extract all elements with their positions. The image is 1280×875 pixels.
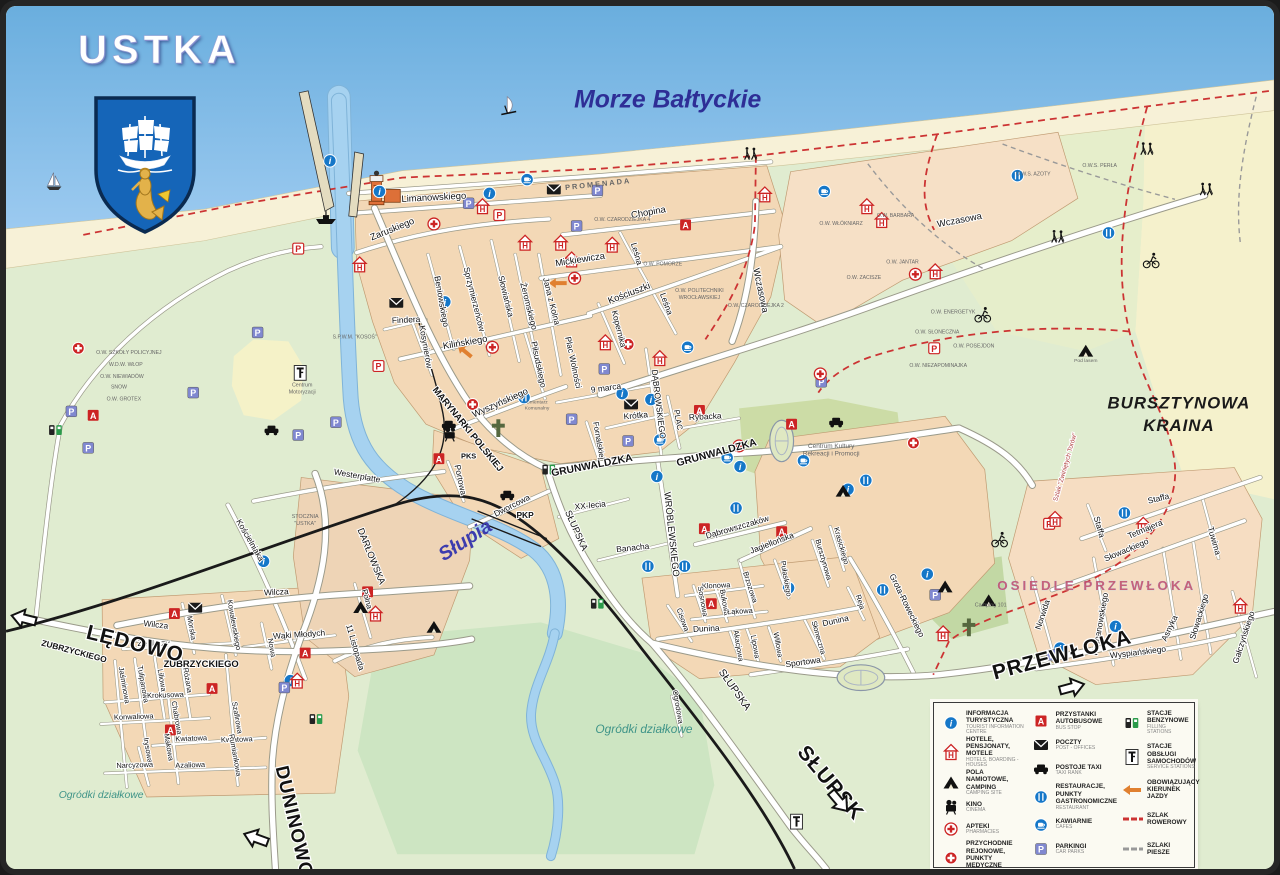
svg-text:H: H	[609, 244, 615, 253]
street-label: Findera	[392, 314, 421, 325]
street-label: O.W. SZKOŁY POLICYJNEJ	[96, 350, 162, 356]
cafe-icon	[681, 341, 693, 353]
taxi-icon	[1034, 764, 1048, 774]
legend-item-bike: SZLAK ROWEROWY	[1121, 808, 1188, 830]
svg-text:H: H	[602, 341, 608, 350]
legend-sublabel: SERVICE STATIONS	[1147, 765, 1196, 771]
legend-item-medical: PRZYCHODNIE REJONOWE, PUNKTY MEDYCZNEAMB…	[940, 840, 1026, 869]
restaurant-icon	[876, 584, 888, 596]
street-label: STOCZNIA	[292, 514, 319, 520]
area-label: Ogródki działkowe	[59, 790, 144, 801]
legend-label: INFORMACJA TURYSTYCZNA	[966, 710, 1026, 725]
area-label: Ogródki działkowe	[595, 722, 693, 736]
parkingr-icon: P	[929, 343, 940, 354]
legend-sublabel: RESTAURANT	[1056, 806, 1117, 812]
street-label: Centrum Kultury	[808, 443, 855, 450]
service-icon	[791, 814, 803, 829]
legend-label: STACJE BENZYNOWE	[1147, 710, 1189, 725]
street-label: S.P.W.M. "KOSOŚ"	[333, 332, 377, 340]
legend-sublabel: CAFES	[1056, 825, 1093, 831]
bus-icon: A	[433, 453, 444, 464]
parking-icon: P	[1030, 838, 1052, 860]
legend-sublabel: BUS STOP	[1056, 726, 1117, 732]
street-label: Kwiatowa	[175, 733, 208, 743]
street-label: Motoryzacji	[289, 390, 316, 396]
bus-icon: A	[1030, 710, 1052, 732]
svg-text:A: A	[788, 420, 795, 430]
bike-icon	[1121, 808, 1143, 830]
svg-text:P: P	[496, 211, 502, 221]
medical-icon	[907, 437, 919, 449]
legend-item-pharmacy: APTEKIPHARMACIES	[940, 818, 1026, 840]
legend-label: SZLAKI PIESZE	[1147, 842, 1188, 857]
legend-sublabel: CAR PARKS	[1056, 850, 1087, 856]
svg-text:A: A	[436, 454, 443, 464]
street-label: Centrum	[292, 383, 313, 389]
svg-text:H: H	[948, 751, 954, 760]
restaurant-icon	[1034, 791, 1047, 804]
street-label: Krokusowa	[147, 690, 185, 700]
street-label: Rekreacji i Promocji	[803, 451, 860, 458]
svg-text:H: H	[762, 193, 768, 202]
restaurant-icon	[730, 502, 742, 514]
parking-icon: P	[293, 430, 304, 441]
parking-icon: P	[566, 414, 577, 425]
svg-text:P: P	[574, 222, 580, 232]
cafe-icon	[1034, 818, 1047, 831]
coat-of-arms	[92, 94, 198, 236]
parking-icon: P	[571, 221, 582, 232]
street-label: Konwaliowa	[114, 711, 155, 721]
bus-icon: A	[1035, 716, 1046, 727]
street-label: WROCŁAWSKIEJ	[679, 295, 721, 301]
svg-text:P: P	[281, 683, 287, 693]
info-icon: i	[483, 187, 495, 199]
restaurant-icon	[1118, 507, 1130, 519]
pharmacy-icon	[569, 272, 581, 284]
parking-icon: P	[623, 436, 634, 447]
legend-sublabel: HOTELS, BOARDING - HOUSES	[966, 758, 1026, 769]
street-label: O.W. NIEZAPOMINAJKA	[909, 363, 967, 369]
street-label: O.W. ENERGETYK	[931, 310, 976, 316]
legend-sublabel: CINEMA	[966, 808, 985, 814]
stadium-h-icon	[837, 665, 885, 691]
legend-item-hotel: HHOTELE, PENSJONATY, MOTELEHOTELS, BOARD…	[940, 736, 1026, 769]
info-icon: i	[921, 568, 933, 580]
pharmacy-icon	[814, 368, 826, 380]
legend-item-fuel: STACJE BENZYNOWEFILLING STATIONS	[1121, 710, 1188, 736]
legend-item-restaurant: RESTAURACJE, PUNKTY GASTRONOMICZNERESTAU…	[1030, 783, 1117, 811]
svg-text:H: H	[864, 205, 870, 214]
street-label: O.W. WŁÓKNIARZ	[819, 220, 862, 227]
camping-icon	[940, 772, 962, 794]
area-label: BURSZTYNOWA	[1108, 393, 1251, 412]
legend-label: OBOWIĄZUJĄCY KIERUNEK JAZDY	[1147, 779, 1199, 801]
post-icon	[1030, 734, 1052, 756]
kino-icon	[940, 796, 962, 818]
parking-icon: P	[252, 327, 263, 338]
street-label: W.D.W. WŁOP	[109, 362, 143, 368]
legend-label: SZLAK ROWEROWY	[1147, 812, 1188, 827]
legend-item-kino: KINOCINEMA	[940, 796, 1026, 818]
svg-text:P: P	[255, 328, 261, 338]
parking-icon: P	[1035, 844, 1046, 855]
street-label: Łąkowa	[727, 606, 754, 616]
fuel-icon	[1121, 712, 1143, 734]
foot-icon	[1121, 838, 1143, 860]
map-paper: iiiiiiiiiiiiiiPPPPPPPPPPPPPPPPPPPPPHHHHH…	[6, 6, 1274, 869]
svg-text:P: P	[625, 437, 631, 447]
svg-text:P: P	[295, 244, 301, 254]
street-label: Azaliowa	[175, 760, 206, 770]
street-label: Cmentarz	[526, 399, 548, 405]
cafe-icon	[1030, 814, 1052, 836]
street-label: O.W. BARBARA	[877, 213, 915, 219]
post-icon	[389, 298, 403, 308]
legend-label: POLA NAMIOTOWE, CAMPING	[966, 769, 1026, 791]
bus-icon: A	[786, 419, 797, 430]
parking-icon: P	[330, 417, 341, 428]
street-label: O.W. GROTEX	[107, 397, 142, 403]
post-icon	[624, 400, 638, 410]
street-label: Camping 101	[975, 603, 1007, 609]
legend-item-post: POCZTYPOST - OFFICES	[1030, 734, 1117, 756]
service-icon	[1126, 750, 1138, 765]
fuel-icon	[1126, 718, 1139, 728]
street-label: O.W. POMORZE	[643, 261, 682, 267]
legend-sublabel: FILLING STATIONS	[1147, 725, 1189, 736]
street-label: Krótka	[623, 409, 648, 421]
svg-text:P: P	[932, 590, 938, 600]
legend-sublabel: PHARMACIES	[966, 830, 999, 836]
svg-text:H: H	[1052, 518, 1058, 527]
bus-icon: A	[169, 608, 180, 619]
street-label: O.W. POLITECHNIKI	[675, 288, 724, 294]
svg-text:A: A	[171, 609, 178, 619]
street-label: SNOW	[111, 385, 127, 391]
service-icon	[294, 366, 306, 381]
post-icon	[1034, 740, 1048, 750]
info-icon: i	[373, 185, 385, 197]
svg-text:A: A	[90, 411, 97, 421]
info-icon: i	[651, 470, 663, 482]
legend-label: RESTAURACJE, PUNKTY GASTRONOMICZNE	[1056, 783, 1117, 805]
svg-text:A: A	[209, 684, 216, 694]
cafe-icon	[818, 185, 830, 197]
street-label: O.W. CZARODZIEJKA 2	[728, 303, 784, 309]
parkingr-icon: P	[293, 243, 304, 254]
legend-item-taxi: POSTOJE TAXITAXI RANK	[1030, 759, 1117, 781]
svg-text:H: H	[932, 270, 938, 279]
cafe-icon	[521, 173, 533, 185]
street-label: PKS	[461, 452, 476, 461]
svg-text:P: P	[295, 431, 301, 441]
area-label: Morze Bałtyckie	[574, 87, 761, 114]
pharmacy-icon	[428, 218, 440, 230]
street-label: O.W.S. AZOTY	[1016, 172, 1051, 178]
legend-item-bus: APRZYSTANKI AUTOBUSOWEBUS STOP	[1030, 710, 1117, 732]
svg-text:P: P	[333, 418, 339, 428]
legend-label: PRZYCHODNIE REJONOWE, PUNKTY MEDYCZNE	[966, 840, 1026, 869]
map-legend: iINFORMACJA TURYSTYCZNATOURIST INFORMATI…	[933, 702, 1195, 868]
svg-text:P: P	[190, 388, 196, 398]
street-label: O.W.S. PERŁA	[1082, 163, 1117, 169]
legend-label: PRZYSTANKI AUTOBUSOWE	[1056, 711, 1117, 726]
medical-icon	[72, 342, 84, 354]
page-title: USTKA	[78, 28, 241, 73]
street-label: Wilcza	[264, 586, 290, 597]
street-label: Narcyzowa	[116, 760, 154, 770]
parking-icon: P	[83, 442, 94, 453]
legend-column: STACJE BENZYNOWEFILLING STATIONSSTACJE O…	[1121, 710, 1188, 860]
svg-text:H: H	[357, 263, 363, 272]
street-label: O.W. CZARODZIEJKA 4	[594, 217, 650, 223]
medical-icon	[940, 847, 962, 869]
legend-item-parking: PPARKINGICAR PARKS	[1030, 838, 1117, 860]
hotel-icon: H	[945, 745, 958, 761]
area-label: OSIEDLE PRZEWŁOKA	[997, 578, 1196, 593]
parking-icon: P	[599, 364, 610, 375]
svg-text:H: H	[294, 680, 300, 689]
legend-item-cafe: KAWIARNIECAFES	[1030, 814, 1117, 836]
svg-text:H: H	[558, 242, 564, 251]
hotel-icon: H	[940, 741, 962, 763]
info-icon: i	[945, 717, 958, 730]
medical-icon	[945, 852, 957, 864]
svg-text:A: A	[682, 221, 689, 231]
svg-text:H: H	[480, 205, 486, 214]
bus-icon: A	[207, 683, 218, 694]
street-label: O.W. NIEWIADÓW	[100, 373, 144, 380]
restaurant-icon	[1030, 786, 1052, 808]
street-label: O.W. POSEJDON	[953, 343, 994, 349]
legend-item-oneway: OBOWIĄZUJĄCY KIERUNEK JAZDY	[1121, 779, 1188, 801]
parking-icon: P	[188, 387, 199, 398]
restaurant-icon	[860, 474, 872, 486]
oneway-icon	[1123, 785, 1141, 795]
restaurant-icon	[642, 560, 654, 572]
svg-text:P: P	[931, 344, 937, 354]
legend-item-service: STACJE OBSŁUGI SAMOCHODÓWSERVICE STATION…	[1121, 743, 1188, 771]
street-label: Pod lasem	[1074, 358, 1097, 364]
oneway-icon	[1121, 779, 1143, 801]
legend-sublabel: TOURIST INFORMATION CENTRE	[966, 725, 1026, 736]
street-label: Komunalny	[525, 405, 550, 411]
svg-text:P: P	[601, 365, 607, 375]
area-label: KRAINA	[1143, 416, 1214, 435]
street-label: O.W. ZACISZE	[847, 275, 882, 281]
street-label: Rybacka	[689, 410, 723, 422]
svg-text:H: H	[657, 357, 663, 366]
bus-icon: A	[88, 410, 99, 421]
parking-icon: P	[66, 406, 77, 417]
svg-text:A: A	[302, 649, 309, 659]
svg-text:H: H	[373, 612, 379, 621]
post-icon	[188, 603, 202, 613]
legend-item-camping: POLA NAMIOTOWE, CAMPINGCAMPING SITE	[940, 769, 1026, 797]
parking-icon: P	[279, 682, 290, 693]
legend-label: HOTELE, PENSJONATY, MOTELE	[966, 736, 1026, 758]
street-label: O.W. SŁONECZNA	[915, 329, 960, 335]
svg-text:H: H	[1237, 605, 1243, 614]
street-label: O.W. JANTAR	[886, 259, 919, 265]
svg-text:A: A	[1037, 717, 1044, 727]
svg-text:P: P	[68, 407, 74, 417]
parkingr-icon: P	[494, 210, 505, 221]
bus-icon: A	[680, 220, 691, 231]
svg-text:P: P	[569, 415, 575, 425]
info-icon: i	[940, 712, 962, 734]
street-label: "USTKA"	[294, 521, 316, 527]
bus-icon: A	[300, 648, 311, 659]
legend-sublabel: POST - OFFICES	[1056, 746, 1096, 752]
svg-text:P: P	[376, 362, 382, 372]
map-frame: iiiiiiiiiiiiiiPPPPPPPPPPPPPPPPPPPPPHHHHH…	[0, 0, 1280, 875]
restaurant-icon	[1102, 227, 1114, 239]
info-icon: i	[734, 460, 746, 472]
legend-label: STACJE OBSŁUGI SAMOCHODÓW	[1147, 743, 1196, 765]
taxi-icon	[1030, 759, 1052, 781]
svg-text:H: H	[940, 632, 946, 641]
camping-icon	[944, 776, 959, 788]
kino-icon	[946, 800, 956, 815]
svg-text:H: H	[879, 219, 885, 228]
street-label: PKP	[516, 510, 534, 520]
info-icon: i	[324, 155, 336, 167]
legend-column: APRZYSTANKI AUTOBUSOWEBUS STOPPOCZTYPOST…	[1030, 710, 1117, 860]
svg-text:P: P	[1038, 845, 1044, 855]
legend-column: iINFORMACJA TURYSTYCZNATOURIST INFORMATI…	[940, 710, 1026, 860]
legend-sublabel: TAXI RANK	[1056, 771, 1102, 777]
parkingr-icon: P	[373, 361, 384, 372]
pharmacy-icon	[909, 268, 921, 280]
post-icon	[547, 185, 561, 195]
legend-item-info: iINFORMACJA TURYSTYCZNATOURIST INFORMATI…	[940, 710, 1026, 736]
svg-text:H: H	[522, 242, 528, 251]
svg-text:P: P	[85, 443, 91, 453]
street-label: Dunina	[693, 623, 720, 634]
pharmacy-icon	[486, 341, 498, 353]
pharmacy-icon	[945, 823, 957, 835]
pharmacy-icon	[940, 818, 962, 840]
service-icon	[1121, 746, 1143, 768]
legend-item-foot: SZLAKI PIESZE	[1121, 838, 1188, 860]
svg-text:P: P	[466, 199, 472, 209]
